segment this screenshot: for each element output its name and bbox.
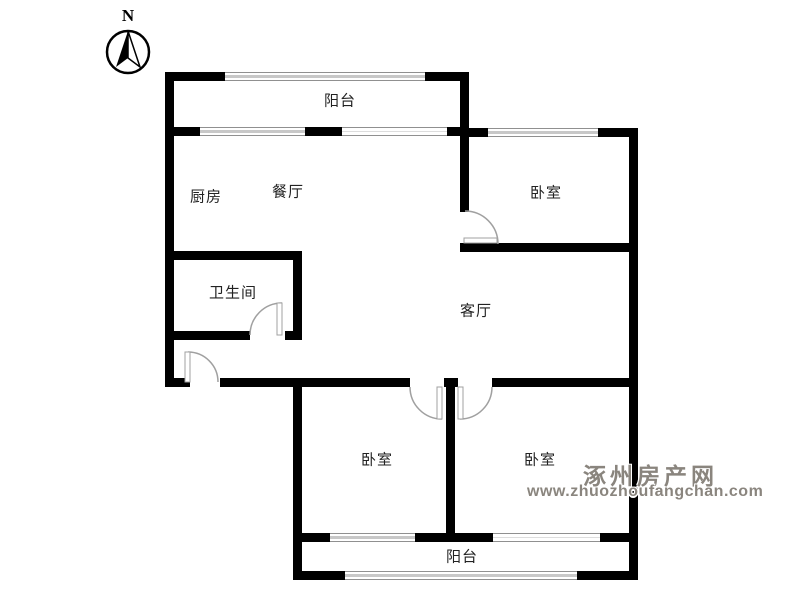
- compass-icon: [98, 8, 158, 83]
- room-label-bedroom-ne: 卧室: [530, 182, 562, 203]
- room-label-balcony-bottom: 阳台: [446, 546, 478, 567]
- floorplan-canvas: N 阳台 厨房 餐厅 卧室 卫生间 客厅 卧室 卧室 阳台 涿州房产网 www.…: [0, 0, 800, 600]
- door-leaf-sw-bedroom: [437, 387, 442, 419]
- room-label-dining: 餐厅: [272, 181, 304, 202]
- door-leaf-se-bedroom: [458, 387, 463, 419]
- door-leaf-bathroom: [277, 303, 282, 335]
- door-arcs-layer: [0, 0, 800, 600]
- room-label-bathroom: 卫生间: [209, 282, 257, 303]
- door-arc-se-bedroom: [460, 387, 492, 419]
- room-label-living: 客厅: [460, 300, 492, 321]
- door-leaf-ne-bedroom: [464, 238, 497, 243]
- door-arc-entry: [188, 352, 218, 382]
- room-label-bedroom-se: 卧室: [524, 449, 556, 470]
- room-label-balcony-top: 阳台: [324, 90, 356, 111]
- door-leaf-entry: [185, 352, 190, 382]
- room-label-bedroom-sw: 卧室: [361, 449, 393, 470]
- room-label-kitchen: 厨房: [190, 186, 222, 207]
- watermark-site-url: www.zhuozhoufangchan.com: [527, 483, 763, 501]
